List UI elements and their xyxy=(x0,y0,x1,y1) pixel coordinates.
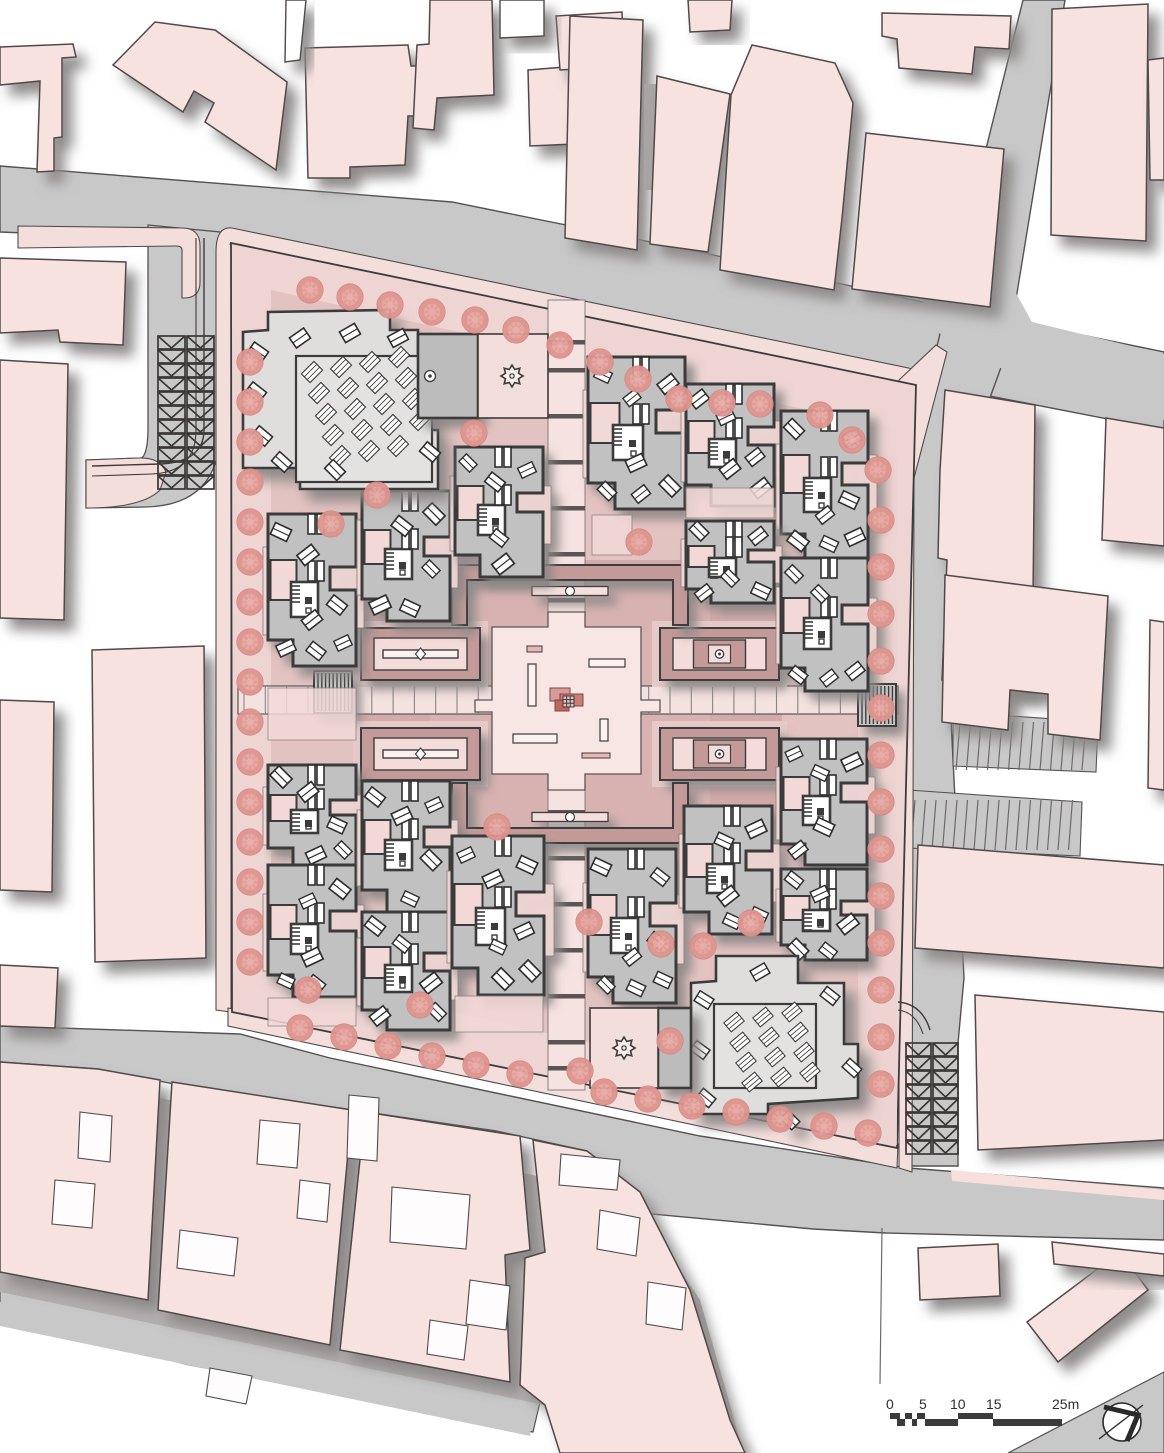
svg-text:5: 5 xyxy=(919,1396,927,1412)
svg-text:0: 0 xyxy=(886,1396,894,1412)
svg-text:25m: 25m xyxy=(1052,1396,1079,1412)
svg-text:10: 10 xyxy=(950,1396,966,1412)
svg-text:15: 15 xyxy=(986,1396,1002,1412)
